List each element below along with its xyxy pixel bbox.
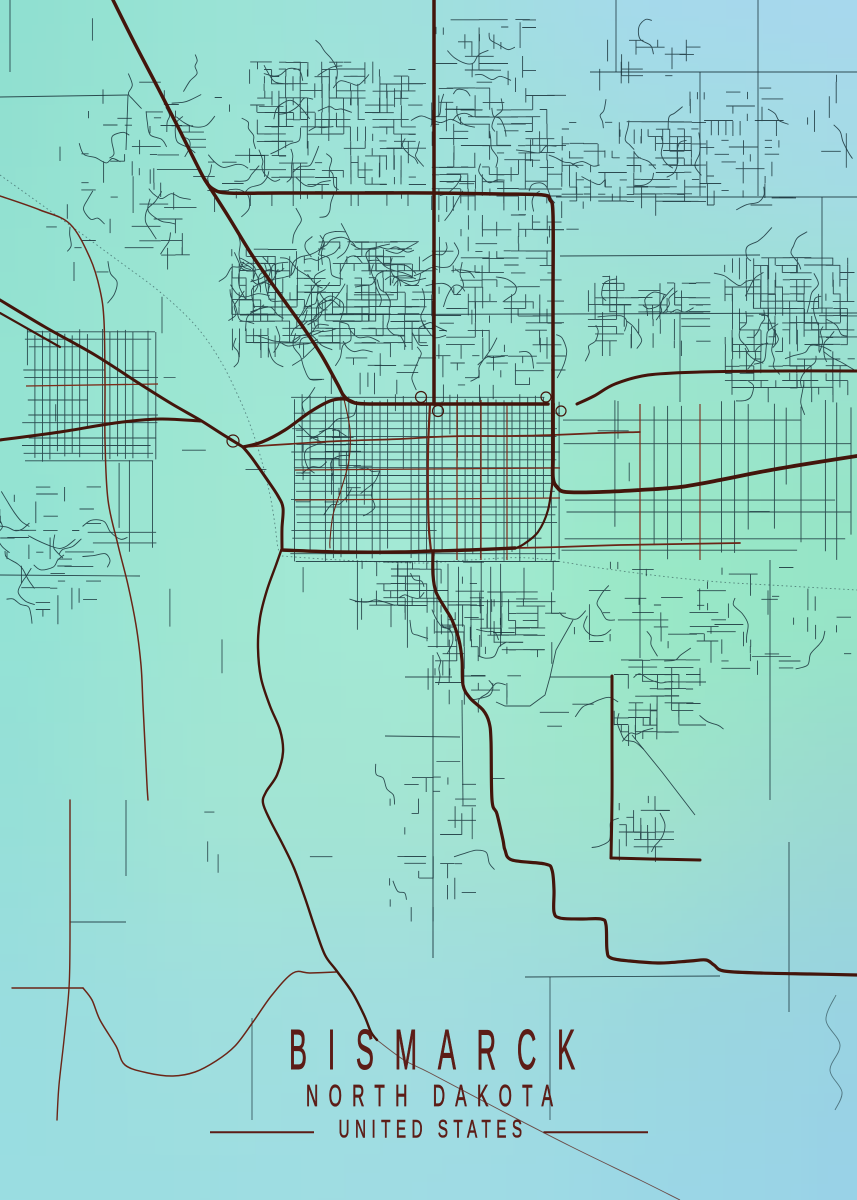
svg-text:NORTH DAKOTA: NORTH DAKOTA (306, 1079, 563, 1114)
svg-text:BISMARCK: BISMARCK (289, 1019, 596, 1081)
svg-text:UNITED STATES: UNITED STATES (339, 1116, 528, 1144)
